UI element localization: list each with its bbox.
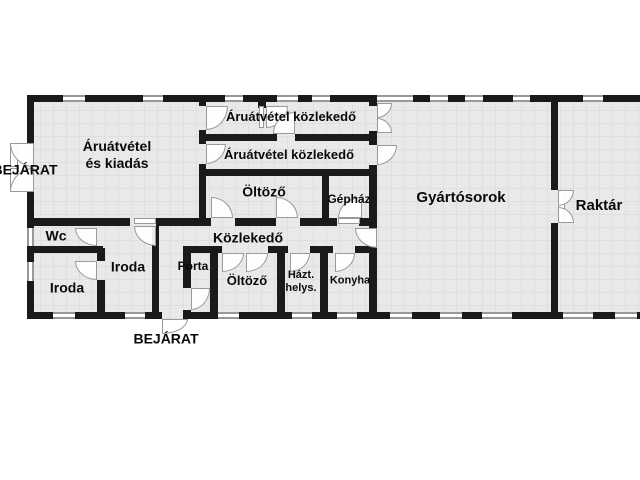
window: [27, 262, 34, 281]
window: [430, 95, 448, 102]
window: [377, 95, 413, 102]
room-label-iroda1: Iroda: [50, 280, 84, 297]
room-label-iroda2: Iroda: [111, 259, 145, 276]
wall-interior: [27, 246, 103, 253]
wall-interior: [199, 169, 376, 176]
window: [482, 312, 512, 319]
window: [513, 95, 530, 102]
wall-left: [27, 95, 34, 143]
wall-interior: [300, 218, 337, 226]
room-label-porta: Porta: [178, 259, 209, 273]
window: [615, 312, 637, 319]
room-label-wc: Wc: [46, 228, 67, 245]
wall-interior: [359, 218, 376, 226]
room-label-kozlekedo: Közlekedő: [213, 230, 283, 247]
window: [583, 95, 603, 102]
room-label-konyha: Konyha: [330, 274, 370, 287]
window: [125, 312, 145, 319]
wall-interior: [235, 218, 276, 226]
wall-interior: [295, 134, 376, 141]
wall-interior: [369, 98, 377, 106]
wall-interior: [369, 248, 377, 319]
room-label-corridor1: Áruátvétel közlekedő: [226, 109, 356, 125]
wall-interior: [369, 131, 377, 145]
wall-interior: [551, 223, 558, 319]
floorplan-canvas: BEJÁRAT Áruátvétel és kiadás Áruátvétel …: [0, 0, 640, 480]
window: [312, 95, 330, 102]
door-leaf: [338, 218, 360, 224]
room-label-oltozo1: Öltöző: [242, 184, 286, 201]
window: [27, 228, 34, 246]
window: [218, 312, 239, 319]
wall-interior: [27, 218, 130, 226]
wall-interior: [97, 280, 105, 319]
wall-interior: [320, 246, 328, 319]
room-label-corridor2: Áruátvétel közlekedő: [224, 147, 354, 163]
window: [563, 312, 593, 319]
wall-interior: [199, 134, 277, 141]
entrance-label-bottom: BEJÁRAT: [133, 331, 198, 348]
window: [277, 95, 298, 102]
room-label-gephaz: Gépház: [327, 192, 370, 206]
window: [292, 312, 312, 319]
wall-interior: [551, 98, 558, 190]
window: [337, 312, 357, 319]
window: [440, 312, 462, 319]
window: [390, 312, 412, 319]
window: [143, 95, 163, 102]
entrance-label-left: BEJÁRAT: [0, 162, 58, 179]
wall-interior: [156, 218, 211, 226]
wall-interior: [277, 246, 285, 319]
window: [63, 95, 85, 102]
wall-top: [27, 95, 640, 102]
wall-interior: [210, 250, 218, 319]
room-label-gyartosorok: Gyártósorok: [416, 189, 505, 207]
room-label-hazt-helys: Házt. helys.: [285, 269, 316, 295]
room-label-aruatvetel: Áruátvétel és kiadás: [83, 138, 151, 172]
window: [225, 95, 243, 102]
wall-interior: [183, 310, 191, 319]
room-label-oltozo2: Öltöző: [227, 273, 267, 289]
window: [465, 95, 483, 102]
wall-interior: [97, 248, 105, 261]
wall-left: [27, 192, 34, 319]
room-label-raktar: Raktár: [576, 197, 623, 215]
door-leaf: [134, 218, 156, 224]
window: [53, 312, 75, 319]
wall-interior: [199, 98, 206, 106]
